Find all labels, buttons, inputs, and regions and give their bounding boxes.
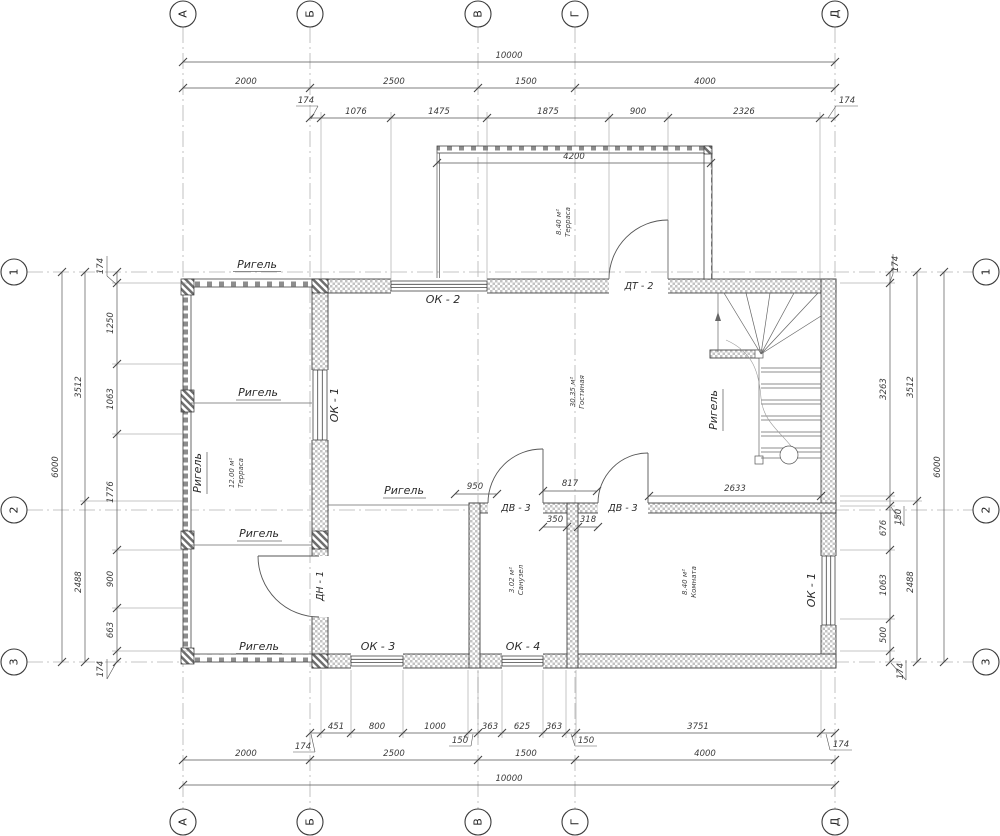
door-dt2 [609,220,668,279]
axis-row-left: 3 [8,659,21,666]
svg-text:Гостиная: Гостиная [578,375,586,409]
window-ok1-left [313,370,327,440]
dim-right-detail: 3263 [879,378,889,400]
dim-left-span: 2488 [74,571,84,593]
window-label-ok3: ОК - 3 [361,640,395,653]
dim-left-span: 3512 [74,376,84,398]
dim-top-detail: 1076 [345,107,367,117]
svg-text:Санузел: Санузел [517,564,525,595]
window-label-ok1-left: ОК - 1 [328,388,341,422]
dim-terrace-width: 4200 [563,152,585,162]
dim-top-detail: 1875 [537,107,559,117]
dim-wall-offset: 174 [891,256,901,272]
dim-right-detail: 676 [879,519,889,536]
dim-top-span: 2500 [383,77,405,87]
svg-text:Терраса: Терраса [237,458,245,488]
dim-bottom-span: 1500 [515,749,537,759]
svg-text:30.35 м²: 30.35 м² [569,377,577,408]
axis-col-top: Д [829,9,842,18]
axis-col-bottom: Д [829,817,842,826]
axis-col-top: В [472,10,485,18]
dim-wall-offset: 174 [298,96,314,106]
window-label-ok1-right: ОК - 1 [805,573,818,607]
svg-text:8.40 м²: 8.40 м² [681,569,689,595]
dim-top-span: 1500 [515,77,537,87]
axis-col-bottom: А [177,818,190,826]
dim-bottom-span: 4000 [694,749,716,759]
beam-label: Ригель [707,390,720,430]
dim-wall-offset: 174 [96,661,106,677]
door-label-dt2: ДТ - 2 [624,281,654,292]
beam-label: Ригель [191,453,204,493]
dim-bottom-total: 10000 [495,774,522,784]
axis-row-left: 1 [8,269,21,276]
walls [312,279,836,668]
dim-top-detail: 2326 [733,107,755,117]
beam-lines [191,272,723,654]
dim-bottom-detail: 363 [482,722,498,732]
dim-right-span: 3512 [906,376,916,398]
dim-bottom-detail: 1000 [424,722,446,732]
stair-treads [761,368,821,458]
beam-label: Ригель [384,484,424,497]
axis-col-bottom: Б [304,818,317,826]
stair-column [780,446,798,464]
svg-text:8.40 м²: 8.40 м² [555,209,563,235]
terrace-open-edge [437,153,440,279]
svg-text:Терраса: Терраса [564,207,572,237]
dim-right-span: 2488 [906,571,916,593]
window-label-ok4: ОК - 4 [506,640,540,653]
room-label-living: 30.35 м²Гостиная [569,375,586,409]
dim-interior: 350 [547,515,563,525]
axis-markers [1,1,999,835]
dim-left-detail: 663 [106,622,116,638]
window-ok4 [502,656,543,666]
dim-interior: 318 [580,515,597,525]
dim-interior: 2633 [724,484,746,494]
axis-col-top: Г [569,10,582,17]
door-label-dv3: ДВ - 3 [500,503,530,514]
dimension-ticks [58,58,948,789]
floor-plan-drawing: 10000 2000 2500 1500 4000 1076 1475 1875… [0,0,1000,836]
dim-wall-offset: 174 [96,258,106,274]
dim-top-detail: 900 [630,107,646,117]
dim-bottom-detail: 800 [369,722,385,732]
axis-col-bottom: В [472,818,485,826]
dim-right-detail: 500 [879,627,889,643]
dim-left-detail: 1250 [106,312,116,334]
dim-wall-offset: 150 [578,736,594,746]
svg-text:12.00 м²: 12.00 м² [228,458,236,489]
dim-wall-offset: 174 [896,663,906,679]
svg-text:Комната: Комната [690,566,698,598]
floor-plan-page: 10000 2000 2500 1500 4000 1076 1475 1875… [0,0,1000,836]
window-ok3 [351,656,403,666]
axis-row-right: 1 [980,269,993,276]
dim-top-detail: 1475 [428,107,450,117]
dimension-lines [62,62,944,785]
dim-interior: 950 [467,482,483,492]
axis-row-left: 2 [8,507,21,514]
dim-left-detail: 1063 [106,388,116,410]
axis-row-right: 3 [980,659,993,666]
axis-col-top: А [177,10,190,18]
door-dv3-2 [598,453,648,503]
wall-posts [181,146,712,668]
room-label-room: 8.40 м²Комната [681,566,698,598]
dim-wall-offset: 150 [894,509,904,525]
dim-bottom-detail: 363 [546,722,562,732]
axis-row-right: 2 [980,507,993,514]
room-label-terrace-left: 12.00 м²Терраса [228,458,245,489]
terrace-stud-walls [183,146,712,662]
dim-wall-offset: 174 [833,740,849,750]
beam-label: Ригель [238,386,278,399]
dim-top-span: 4000 [694,77,716,87]
room-label-wc: 3.02 м²Санузел [508,564,525,595]
dim-wall-offset: 174 [295,742,311,752]
window-label-ok2: ОК - 2 [426,293,460,306]
window-ok2 [391,281,487,291]
dim-wall-offset: 174 [839,96,855,106]
witness-lines [80,112,922,738]
dim-bottom-span: 2000 [235,749,257,759]
dim-interior: 817 [562,479,579,489]
beam-label: Ригель [237,258,277,271]
axis-col-top: Б [304,10,317,18]
dim-right-detail: 1063 [879,574,889,596]
dim-top-total: 10000 [495,51,522,61]
stair-direction-arrow [715,312,721,321]
stair-winders [724,293,821,354]
dim-bottom-detail: 625 [514,722,530,732]
svg-text:3.02 м²: 3.02 м² [508,567,516,593]
window-ok1-right [822,556,835,625]
dim-wall-offset: 150 [452,736,468,746]
staircase [715,293,821,464]
door-label-dv3: ДВ - 3 [607,503,637,514]
beam-label: Ригель [239,527,279,540]
dim-bottom-detail: 451 [328,722,344,732]
dim-left-total: 6000 [51,456,61,478]
beam-label: Ригель [239,640,279,653]
dim-right-total: 6000 [933,456,943,478]
room-label-terrace-top: 8.40 м²Терраса [555,207,572,237]
dim-bottom-detail: 3751 [687,722,709,732]
axis-marker-letters: А Б В Г Д А Б В Г Д 1 2 3 1 2 3 [8,9,993,826]
dim-top-span: 2000 [235,77,257,87]
dim-left-detail: 1776 [106,481,116,503]
door-label-dn1: ДН - 1 [315,571,326,602]
dim-bottom-span: 2500 [383,749,405,759]
axis-col-bottom: Г [569,818,582,825]
dim-left-detail: 900 [106,571,116,587]
